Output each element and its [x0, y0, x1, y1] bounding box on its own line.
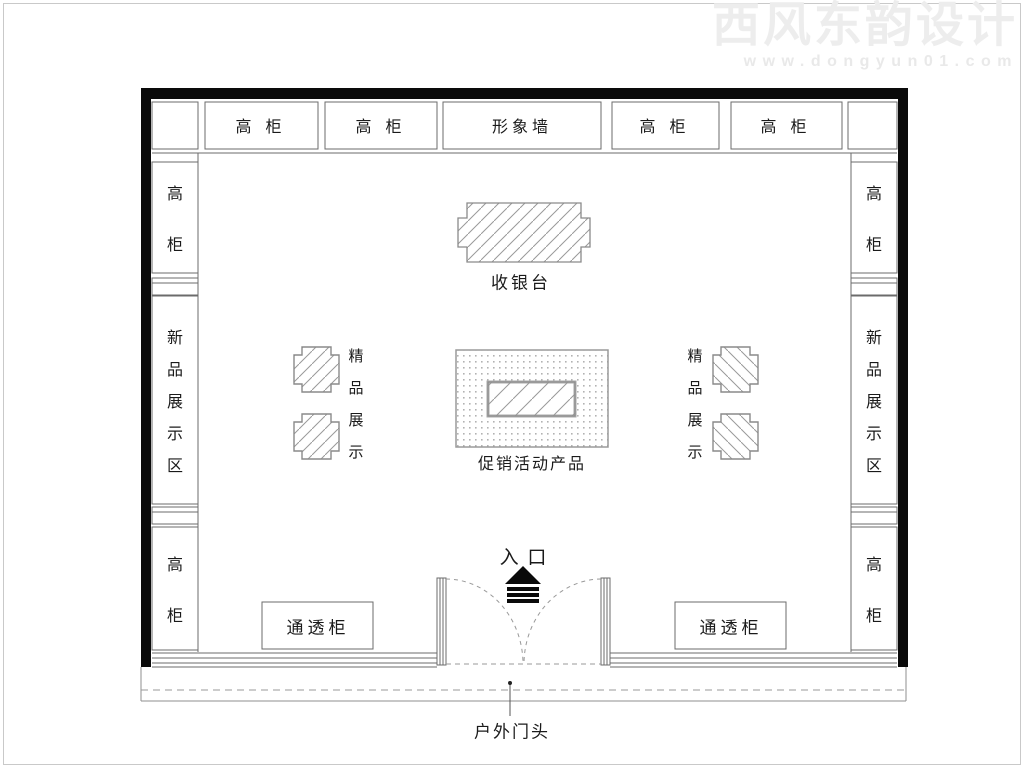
top-cabinet-label-4: 高 柜	[760, 113, 811, 137]
door-swing-arcs	[446, 579, 601, 664]
right-top-cabinet-label: 高柜	[851, 162, 897, 273]
right-bottom-cabinet-label: 高柜	[851, 527, 897, 650]
outdoor-signage-label: 户外门头	[474, 718, 550, 743]
top-cabinet-label-2: 高 柜	[355, 113, 406, 137]
bottom-wall-left	[152, 653, 437, 667]
cashier-counter-label: 收银台	[491, 269, 551, 294]
boutique-table	[713, 347, 758, 392]
store-floor-plan: 西风东韵设计 www.dongyun01.com	[0, 0, 1024, 768]
top-cabinet-label-1: 高 柜	[235, 113, 286, 137]
boutique-table	[294, 347, 339, 392]
left-bottom-cabinet-label: 高柜	[152, 527, 198, 650]
boutique-table	[713, 414, 758, 459]
bottom-wall-right	[610, 653, 897, 667]
boutique-display-left-label: 精品展示	[345, 350, 367, 456]
showcase-cabinet-right-label: 通透柜	[700, 614, 763, 639]
boutique-display-right-label: 精品展示	[684, 350, 706, 456]
boutique-tables-right	[713, 347, 758, 459]
door-jamb-left	[437, 578, 446, 665]
boutique-tables-left	[294, 347, 339, 459]
door-swing-arc-left	[446, 579, 523, 664]
leader-dot	[508, 681, 512, 685]
entrance-label: 入 口	[500, 543, 549, 570]
cashier-counter-shape	[458, 203, 590, 262]
left-top-cabinet-label: 高柜	[152, 162, 198, 273]
door-jamb-right	[601, 578, 610, 665]
right-new-product-zone-label: 新品展示区	[851, 296, 897, 504]
door-swing-arc-right	[524, 579, 601, 664]
boutique-table	[294, 414, 339, 459]
image-wall-label: 形象墙	[492, 113, 552, 137]
top-cabinet-label-3: 高 柜	[639, 113, 690, 137]
promo-area	[456, 350, 608, 447]
storefront-band	[141, 667, 906, 716]
entrance-arrow-icon	[505, 566, 541, 603]
promo-products-label: 促销活动产品	[478, 450, 586, 474]
left-new-product-zone-label: 新品展示区	[152, 296, 198, 504]
showcase-cabinet-left-label: 通透柜	[287, 614, 350, 639]
